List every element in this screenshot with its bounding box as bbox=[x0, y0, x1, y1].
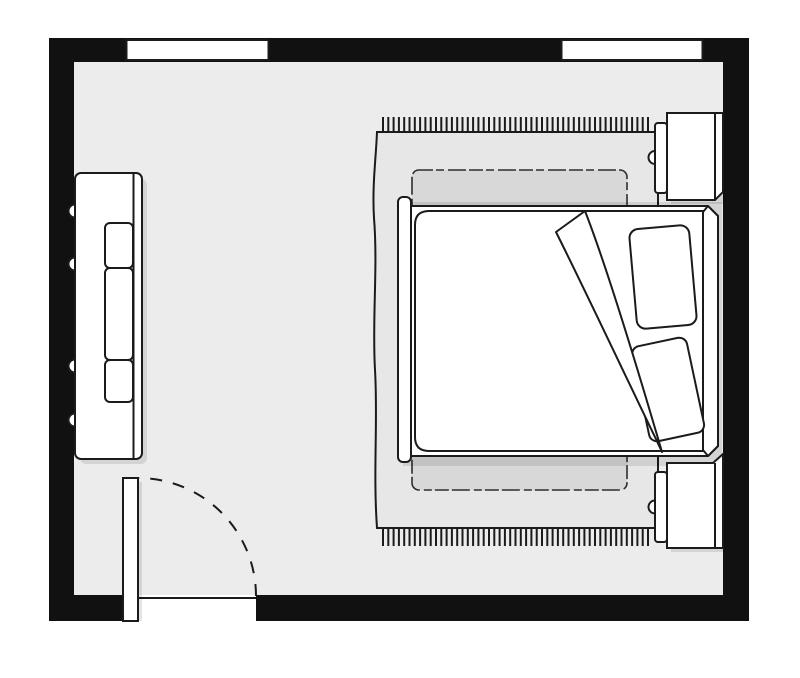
nightstand-bottom-door bbox=[655, 472, 667, 542]
dresser-panel-1 bbox=[105, 223, 133, 268]
headboard bbox=[703, 206, 718, 456]
window-top-right bbox=[562, 40, 703, 60]
window-top-left bbox=[127, 40, 269, 60]
nightstand-top-door bbox=[655, 123, 667, 193]
pillow-upper bbox=[629, 225, 697, 330]
bed-group bbox=[398, 197, 722, 466]
footboard bbox=[398, 197, 411, 462]
dresser-panel-2 bbox=[105, 268, 133, 360]
dresser-panel-3 bbox=[105, 360, 133, 402]
bedroom-floor-plan bbox=[0, 0, 800, 678]
nightstand-top-group bbox=[649, 113, 726, 204]
door-leaf bbox=[123, 478, 138, 621]
dresser-group bbox=[69, 173, 148, 464]
floor-plan-page bbox=[0, 0, 800, 678]
